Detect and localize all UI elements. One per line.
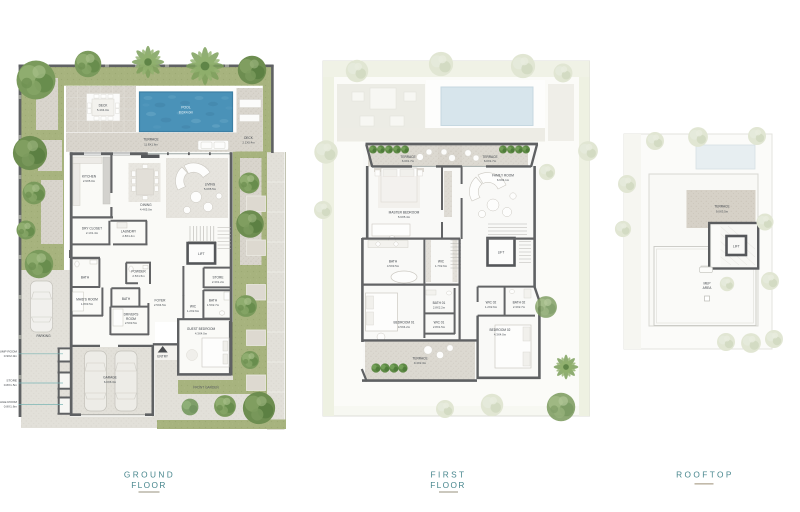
svg-text:2.5X1.5m: 2.5X1.5m xyxy=(132,274,145,278)
svg-text:4.4X5.0m: 4.4X5.0m xyxy=(140,208,153,212)
svg-text:1.5X2.7m: 1.5X2.7m xyxy=(207,303,220,307)
svg-text:BATH: BATH xyxy=(389,260,398,264)
svg-text:8.0X4.0m: 8.0X4.0m xyxy=(179,111,194,115)
svg-text:5.4X4.0m: 5.4X4.0m xyxy=(97,108,110,112)
svg-text:4.5X4.2m: 4.5X4.2m xyxy=(398,325,411,329)
svg-text:GARAGE: GARAGE xyxy=(103,376,117,380)
svg-text:POWDER: POWDER xyxy=(131,270,146,274)
svg-text:2.3X1.2m: 2.3X1.2m xyxy=(212,280,225,284)
svg-text:0.9X2.0m: 0.9X2.0m xyxy=(4,354,18,358)
svg-text:1.2X2.6m: 1.2X2.6m xyxy=(485,305,498,309)
svg-text:TERRACE: TERRACE xyxy=(143,138,158,142)
svg-text:KITCHEN: KITCHEN xyxy=(82,175,97,179)
svg-text:9.0X3.5m: 9.0X3.5m xyxy=(716,210,729,214)
svg-text:WIC: WIC xyxy=(438,260,445,264)
svg-text:AREA: AREA xyxy=(703,286,713,290)
svg-text:2.8X1.5m: 2.8X1.5m xyxy=(433,325,446,329)
svg-text:ROOFTOP: ROOFTOP xyxy=(676,470,734,480)
svg-text:LIFT: LIFT xyxy=(498,251,505,255)
svg-text:2.9X5.0m: 2.9X5.0m xyxy=(83,179,96,183)
svg-text:FRONT GARDEN: FRONT GARDEN xyxy=(193,385,219,389)
svg-text:MAID'S ROOM: MAID'S ROOM xyxy=(76,298,98,302)
svg-text:MEP: MEP xyxy=(704,282,711,286)
svg-text:LAUNDRY: LAUNDRY xyxy=(121,230,137,234)
svg-text:2.1X1.4m: 2.1X1.4m xyxy=(86,231,99,235)
svg-text:1.8X3.5m: 1.8X3.5m xyxy=(81,302,94,306)
svg-text:6.6X4.1m: 6.6X4.1m xyxy=(497,178,510,182)
svg-text:BATH: BATH xyxy=(209,299,218,303)
svg-text:PARKING: PARKING xyxy=(36,334,51,338)
svg-text:STORE: STORE xyxy=(6,379,17,383)
svg-text:BATH: BATH xyxy=(122,297,131,301)
svg-text:LIFT: LIFT xyxy=(198,252,205,256)
svg-text:4.3X4.0m: 4.3X4.0m xyxy=(195,332,208,336)
svg-text:ENTRY: ENTRY xyxy=(157,355,169,359)
svg-text:LIVING: LIVING xyxy=(205,183,216,187)
svg-text:2.8X1.4m: 2.8X1.4m xyxy=(122,234,135,238)
svg-text:6.0X1.7m: 6.0X1.7m xyxy=(484,159,497,163)
svg-text:DINING: DINING xyxy=(140,203,152,207)
svg-text:DECK: DECK xyxy=(99,103,109,107)
svg-text:FLOOR: FLOOR xyxy=(131,480,167,490)
svg-text:FIRST: FIRST xyxy=(431,470,467,480)
svg-text:PUMP ROOM: PUMP ROOM xyxy=(0,350,17,354)
svg-text:5.0X5.5m: 5.0X5.5m xyxy=(204,187,217,191)
svg-text:BATH: BATH xyxy=(81,276,90,280)
svg-text:BEDROOM 01: BEDROOM 01 xyxy=(394,321,415,325)
svg-text:LIFT: LIFT xyxy=(733,245,740,249)
svg-text:5.6X5.4m: 5.6X5.4m xyxy=(398,215,411,219)
svg-text:STORE: STORE xyxy=(213,276,224,280)
svg-text:2.3X2.7m: 2.3X2.7m xyxy=(513,305,526,309)
svg-text:1.7X2.6m: 1.7X2.6m xyxy=(435,264,448,268)
svg-text:MASTER BEDROOM: MASTER BEDROOM xyxy=(389,211,420,215)
svg-text:11.8X1.6m: 11.8X1.6m xyxy=(144,143,158,147)
svg-text:BEDROOM 02: BEDROOM 02 xyxy=(490,328,511,332)
svg-text:4.3X4.0m: 4.3X4.0m xyxy=(494,333,507,337)
svg-text:FLOOR: FLOOR xyxy=(430,480,466,490)
svg-text:TERRACE: TERRACE xyxy=(714,205,729,209)
svg-text:GROUND: GROUND xyxy=(124,470,175,480)
svg-text:1.2X2.6m: 1.2X2.6m xyxy=(187,309,200,313)
svg-text:2.5X4.5m: 2.5X4.5m xyxy=(154,303,167,307)
svg-text:FOYER: FOYER xyxy=(155,299,167,303)
svg-text:ROOM: ROOM xyxy=(126,317,136,321)
svg-text:GARBAGE ROOM: GARBAGE ROOM xyxy=(0,400,17,404)
svg-text:0.8X1.6m: 0.8X1.6m xyxy=(4,405,18,409)
svg-text:4.5X3.5m: 4.5X3.5m xyxy=(387,264,400,268)
svg-text:FAMILY ROOM: FAMILY ROOM xyxy=(492,174,514,178)
svg-text:6.0X6.3m: 6.0X6.3m xyxy=(104,380,117,384)
svg-text:DECK: DECK xyxy=(244,136,254,140)
svg-text:GUEST BEDROOM: GUEST BEDROOM xyxy=(187,327,216,331)
svg-text:POOL: POOL xyxy=(181,106,191,110)
svg-text:2.5X3.5m: 2.5X3.5m xyxy=(125,321,138,325)
svg-text:2.8X2.2m: 2.8X2.2m xyxy=(433,305,446,309)
svg-text:6.0X1.7m: 6.0X1.7m xyxy=(402,159,415,163)
svg-text:WIC: WIC xyxy=(190,305,197,309)
svg-text:9.4X2.3m: 9.4X2.3m xyxy=(414,361,427,365)
svg-text:2.1X5.4m: 2.1X5.4m xyxy=(242,141,255,145)
svg-text:0.8X1.5m: 0.8X1.5m xyxy=(4,383,18,387)
